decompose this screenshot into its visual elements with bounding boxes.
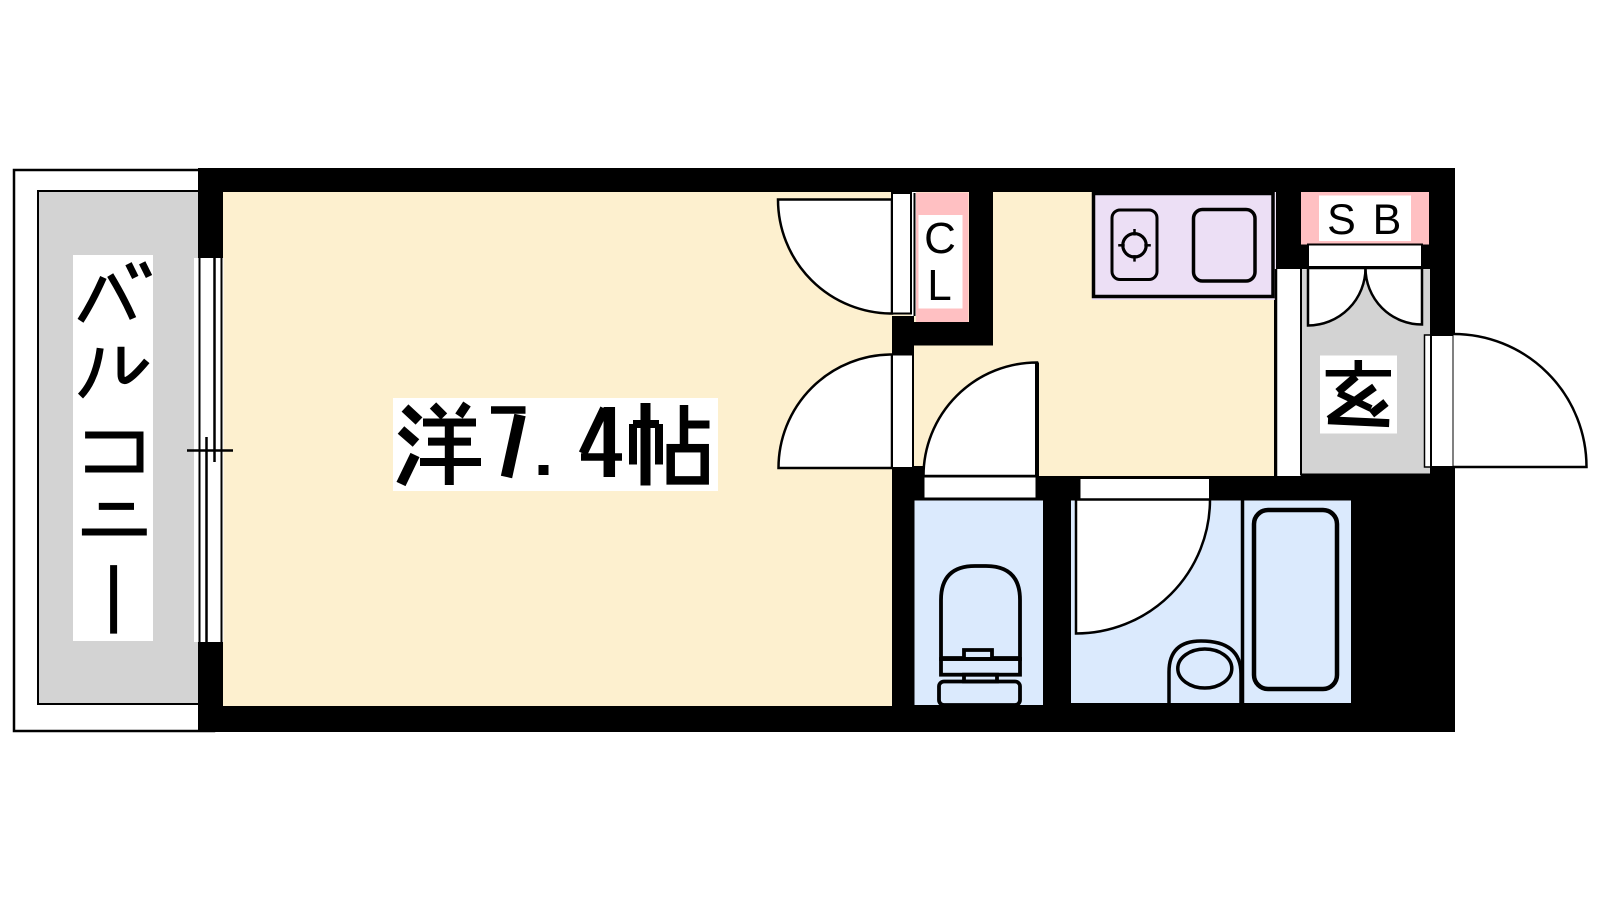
svg-text:B: B	[1373, 196, 1402, 244]
svg-text:L: L	[927, 261, 951, 310]
svg-text:S: S	[1327, 196, 1356, 244]
svg-text:C: C	[924, 214, 956, 263]
